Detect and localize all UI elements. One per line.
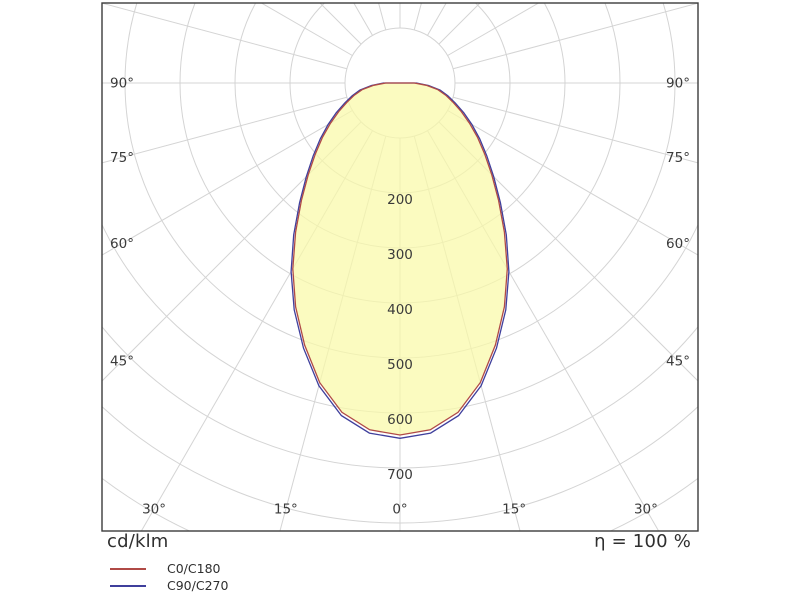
angle-tick-label-left: 75° [110,150,134,166]
radial-tick-label: 600 [387,412,413,428]
angle-tick-label-right: 60° [666,236,690,252]
grid-spoke [453,0,800,69]
angle-tick-label-bottom: 15° [274,502,298,518]
legend-item-c90-c270: C90/C270 [110,577,228,594]
grid-spoke [414,0,596,30]
legend-label-c90-c270: C90/C270 [167,578,228,593]
radial-tick-label: 300 [387,247,413,263]
grid-spoke [439,0,800,44]
legend-label-c0-c180: C0/C180 [167,561,220,576]
radial-tick-label: 700 [387,467,413,483]
photometric-diagram: 20030040050060070090°90°75°75°60°60°45°4… [0,0,800,600]
angle-tick-label-right: 45° [666,354,690,370]
polar-chart: 20030040050060070090°90°75°75°60°60°45°4… [0,0,800,600]
plot-area: 20030040050060070090°90°75°75°60°60°45°4… [0,0,800,600]
angle-tick-label-left: 45° [110,354,134,370]
angle-tick-label-bottom: 30° [142,502,166,518]
legend-item-c0-c180: C0/C180 [110,560,228,577]
radial-tick-label: 200 [387,192,413,208]
angle-tick-label-left: 60° [110,236,134,252]
angle-tick-label-bottom: 30° [634,502,658,518]
grid-spoke [0,0,361,44]
angle-tick-label-bottom: 0° [392,502,407,518]
legend: C0/C180 C90/C270 [110,560,228,594]
angle-tick-label-left: 90° [110,76,134,92]
efficiency-label: η = 100 % [560,531,691,552]
angle-tick-label-right: 90° [666,76,690,92]
angle-tick-label-bottom: 15° [502,502,526,518]
c90-c270-line-swatch [110,585,146,587]
radial-tick-label: 500 [387,357,413,373]
grid-spoke [20,0,373,35]
grid-spoke [0,0,352,56]
radial-tick-label: 400 [387,302,413,318]
grid-spoke [0,0,347,69]
grid-spoke [203,0,385,30]
grid-spoke [448,0,800,56]
grid-spoke [428,0,781,35]
angle-tick-label-right: 75° [666,150,690,166]
unit-label: cd/klm [107,531,169,552]
c0-c180-line-swatch [110,568,146,570]
